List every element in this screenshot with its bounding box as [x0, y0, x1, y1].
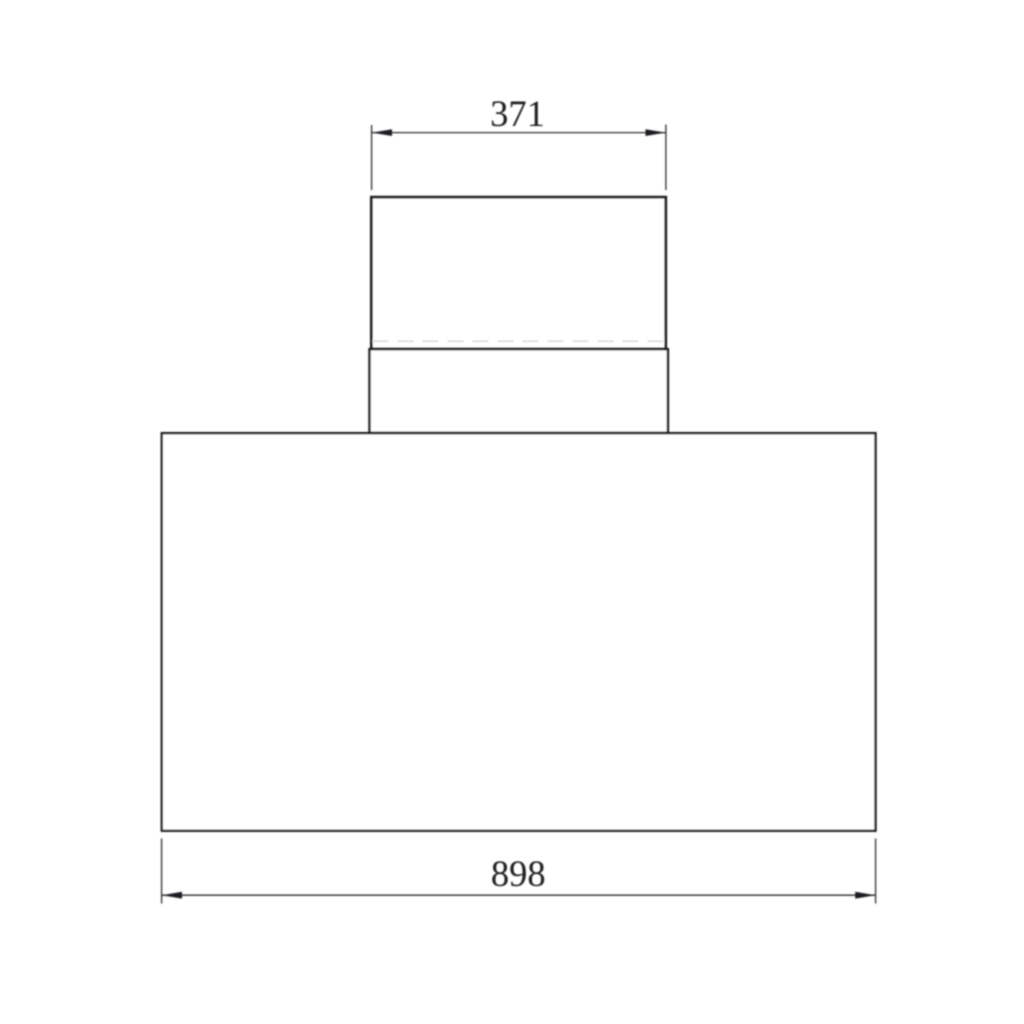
svg-text:898: 898 — [491, 853, 546, 894]
svg-text:371: 371 — [490, 93, 545, 134]
